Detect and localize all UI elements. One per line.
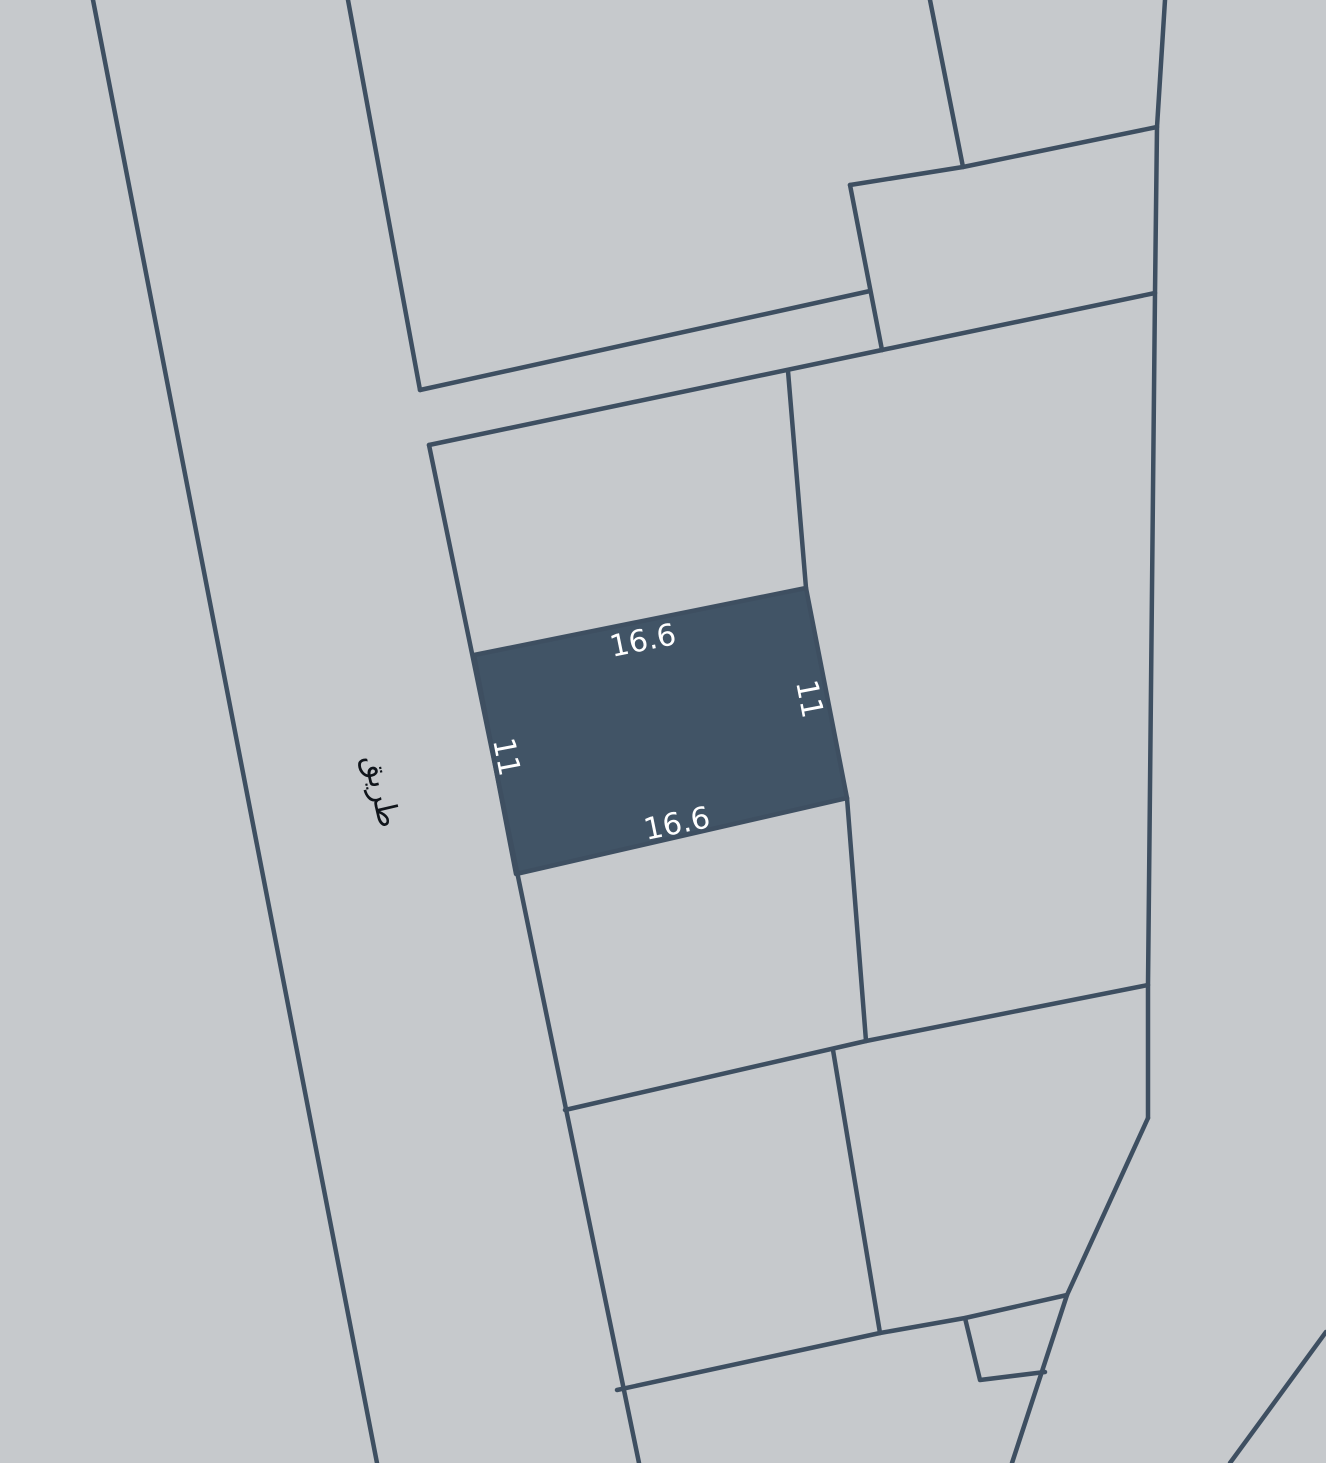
dimension-label-right: 11 — [788, 677, 830, 721]
parcel-map-canvas[interactable]: 16.616.61111طريق — [0, 0, 1326, 1463]
dimension-label-left: 11 — [485, 735, 527, 779]
map-viewport[interactable]: 16.616.61111طريق — [0, 0, 1326, 1463]
